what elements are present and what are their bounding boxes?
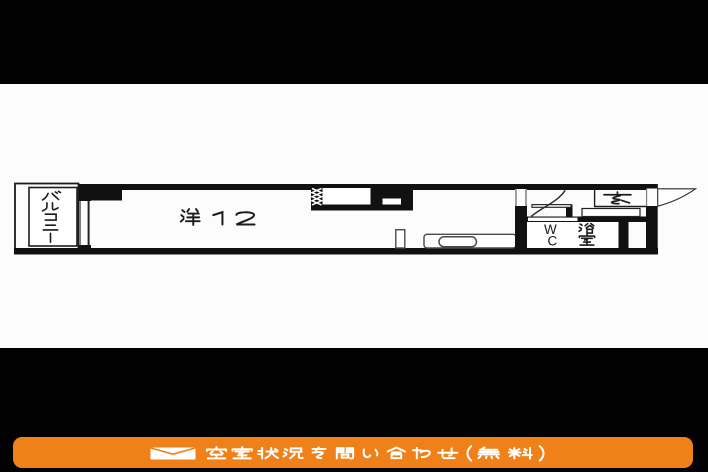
svg-text:C: C [548,234,558,249]
